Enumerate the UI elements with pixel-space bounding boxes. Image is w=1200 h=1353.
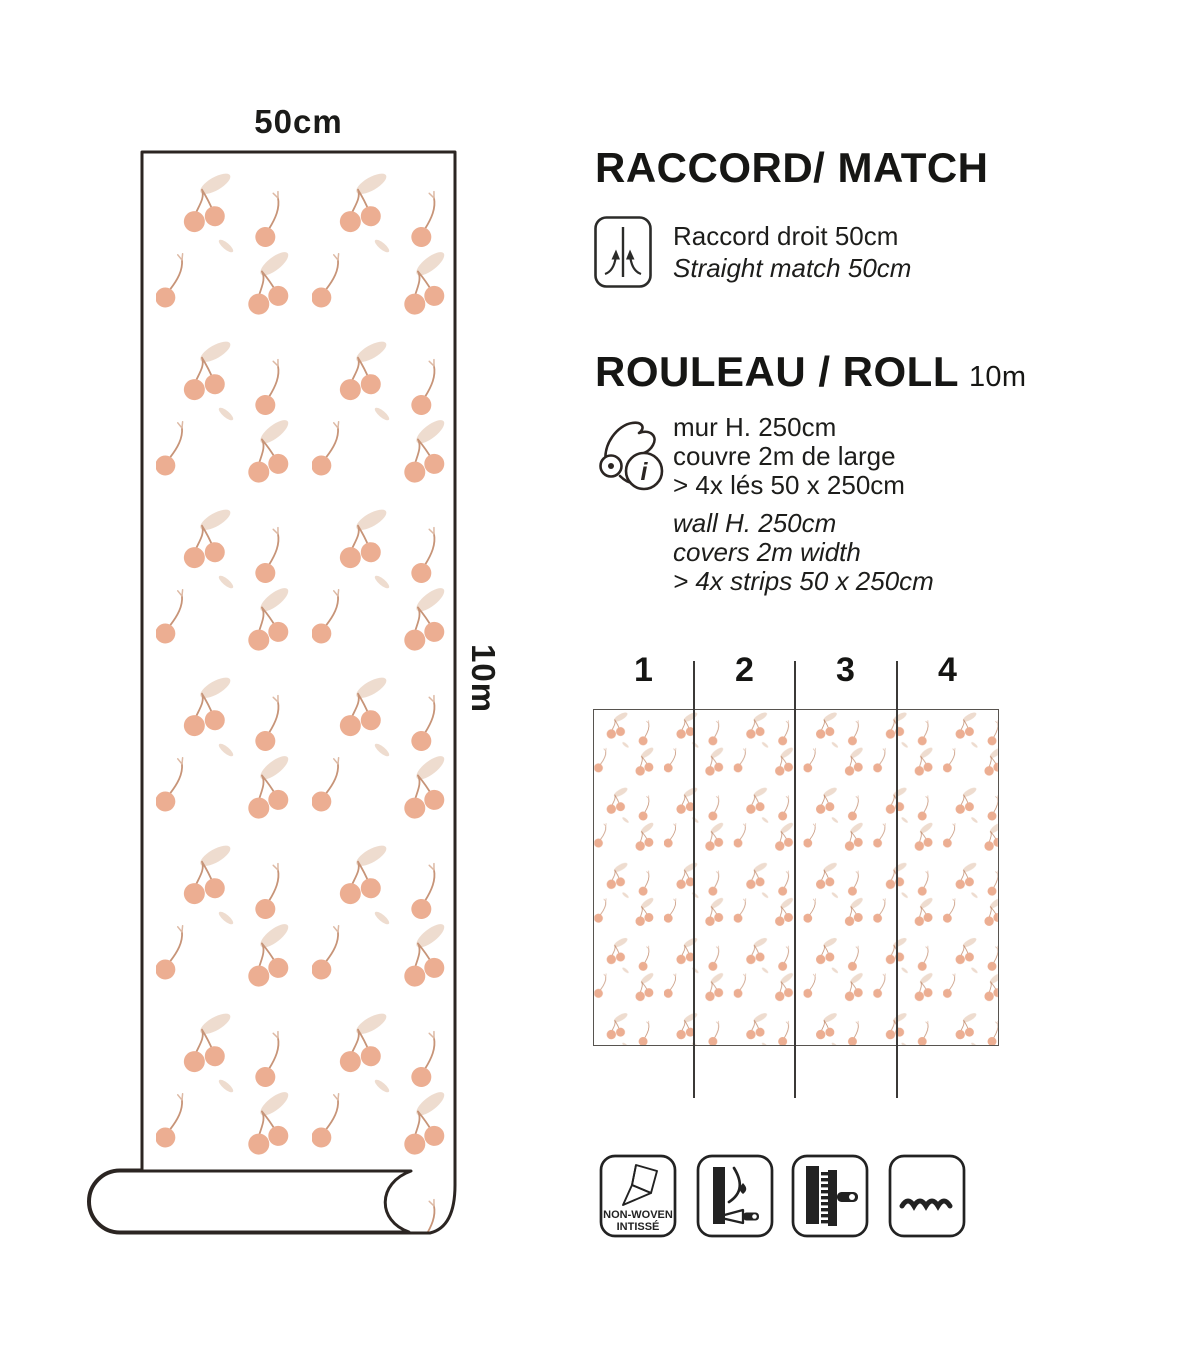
- non-woven-icon: NON-WOVEN INTISSÉ: [599, 1154, 677, 1238]
- strip-number-1: 1: [593, 651, 694, 690]
- roll-strip-shape: [89, 152, 456, 1233]
- wallpaper-info-sheet: 50cm 10m RACCORD/ MATCH Raccord droit 50…: [0, 0, 1200, 1353]
- roll-en-line-1: wall H. 250cm: [673, 509, 934, 538]
- roll-section-title: ROULEAU / ROLL10m: [595, 348, 1026, 396]
- non-woven-label-2: INTISSÉ: [617, 1220, 660, 1233]
- strip-width-label: 50cm: [142, 103, 455, 141]
- roll-title-text: ROULEAU / ROLL: [595, 348, 959, 395]
- strip-number-4: 4: [896, 651, 999, 690]
- roll-fr-line-3: > 4x lés 50 x 250cm: [673, 471, 905, 500]
- roll-fr-line-1: mur H. 250cm: [673, 413, 905, 442]
- non-woven-label-1: NON-WOVEN: [603, 1209, 673, 1221]
- roll-fr-line-2: couvre 2m de large: [673, 442, 905, 471]
- roll-text-en: wall H. 250cm covers 2m width > 4x strip…: [673, 509, 934, 596]
- roll-length-badge: 10m: [969, 361, 1026, 393]
- smoothing-brush-icon: [791, 1154, 869, 1238]
- match-section-title: RACCORD/ MATCH: [595, 144, 989, 192]
- strip-divider-1: [693, 661, 695, 1098]
- paste-the-wall-icon: [696, 1154, 774, 1238]
- roll-en-line-2: covers 2m width: [673, 538, 934, 567]
- straight-match-icon: [594, 216, 652, 288]
- roll-cylinder-shape: [89, 1171, 411, 1232]
- strip-divider-2: [794, 661, 796, 1098]
- wall-coverage-diagram: [593, 709, 999, 1046]
- roll-en-line-3: > 4x strips 50 x 250cm: [673, 567, 934, 596]
- info-i-glyph: i: [641, 458, 649, 486]
- wallpaper-roll-drawing: [60, 130, 480, 1270]
- strip-number-3: 3: [795, 651, 896, 690]
- match-text-fr: Raccord droit 50cm: [673, 222, 898, 251]
- roll-text-fr: mur H. 250cm couvre 2m de large > 4x lés…: [673, 413, 905, 500]
- strip-divider-3: [896, 661, 898, 1098]
- strip-length-label: 10m: [464, 644, 502, 713]
- match-text-en: Straight match 50cm: [673, 254, 911, 283]
- strip-number-2: 2: [694, 651, 795, 690]
- roll-info-icon: i: [594, 412, 678, 504]
- washable-wave-icon: [888, 1154, 966, 1238]
